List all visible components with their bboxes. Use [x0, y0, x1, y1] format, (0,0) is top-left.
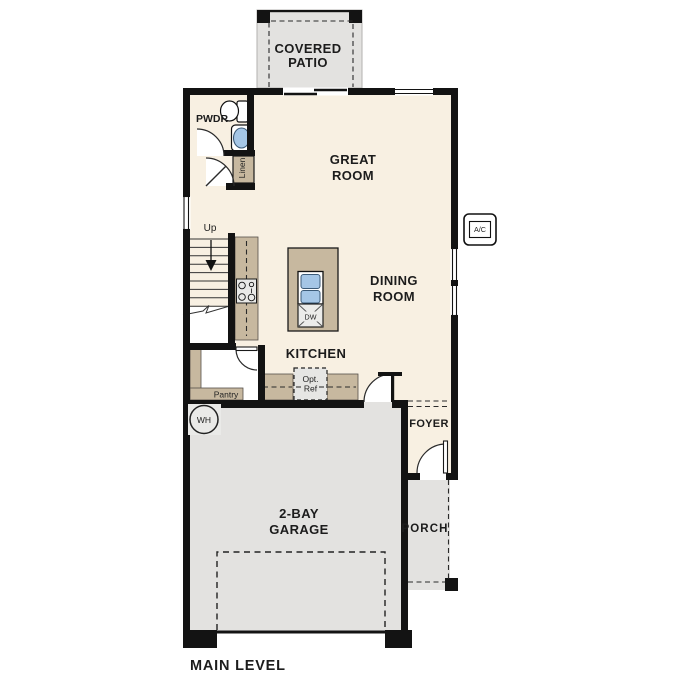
porch-label: PORCH [401, 523, 448, 535]
porch-area [408, 480, 450, 590]
porch-post [445, 578, 458, 591]
opt-ref-label-line2: Ref [304, 384, 318, 394]
dishwasher-label: DW [305, 313, 317, 322]
garage-label-line2: GARAGE [269, 522, 328, 537]
great-room-label-line1: GREAT [330, 152, 377, 167]
linen-label: Linen [237, 157, 247, 178]
ac-unit-icon: A/C [464, 214, 496, 245]
kitchen-label: KITCHEN [286, 346, 347, 361]
covered-patio-label-line2: PATIO [288, 55, 328, 70]
great-room-label-line2: ROOM [332, 168, 374, 183]
dining-room-label-line2: ROOM [373, 289, 415, 304]
water-heater-label: WH [197, 415, 211, 425]
patio-beam [257, 10, 362, 12]
opt-ref-label-line1: Opt. [302, 374, 318, 384]
island-sink-icon [298, 272, 323, 305]
stairs-up-label: Up [204, 223, 217, 234]
water-heater-icon: WH [188, 404, 221, 435]
foyer-label: FOYER [409, 418, 448, 430]
garage-door-threshold [217, 631, 385, 634]
floor-plan: DW [0, 0, 687, 687]
dining-room-label-line1: DINING [370, 273, 418, 288]
dishwasher-icon: DW [298, 304, 323, 327]
page-title: MAIN LEVEL [190, 658, 286, 674]
window-top [395, 88, 433, 96]
pantry-label: Pantry [214, 390, 239, 400]
stairwell-lower-area [190, 307, 228, 347]
patio-post-left [257, 10, 270, 23]
floor-plan-drawing: DW [0, 0, 687, 687]
garage-label-line1: 2-BAY [279, 506, 319, 521]
patio-sliding-door [283, 88, 348, 96]
pwdr-label: PWDR [196, 113, 228, 125]
ac-label: A/C [474, 225, 486, 234]
covered-patio-label-line1: COVERED [274, 41, 341, 56]
range-icon [237, 279, 257, 303]
window-left [183, 196, 191, 230]
